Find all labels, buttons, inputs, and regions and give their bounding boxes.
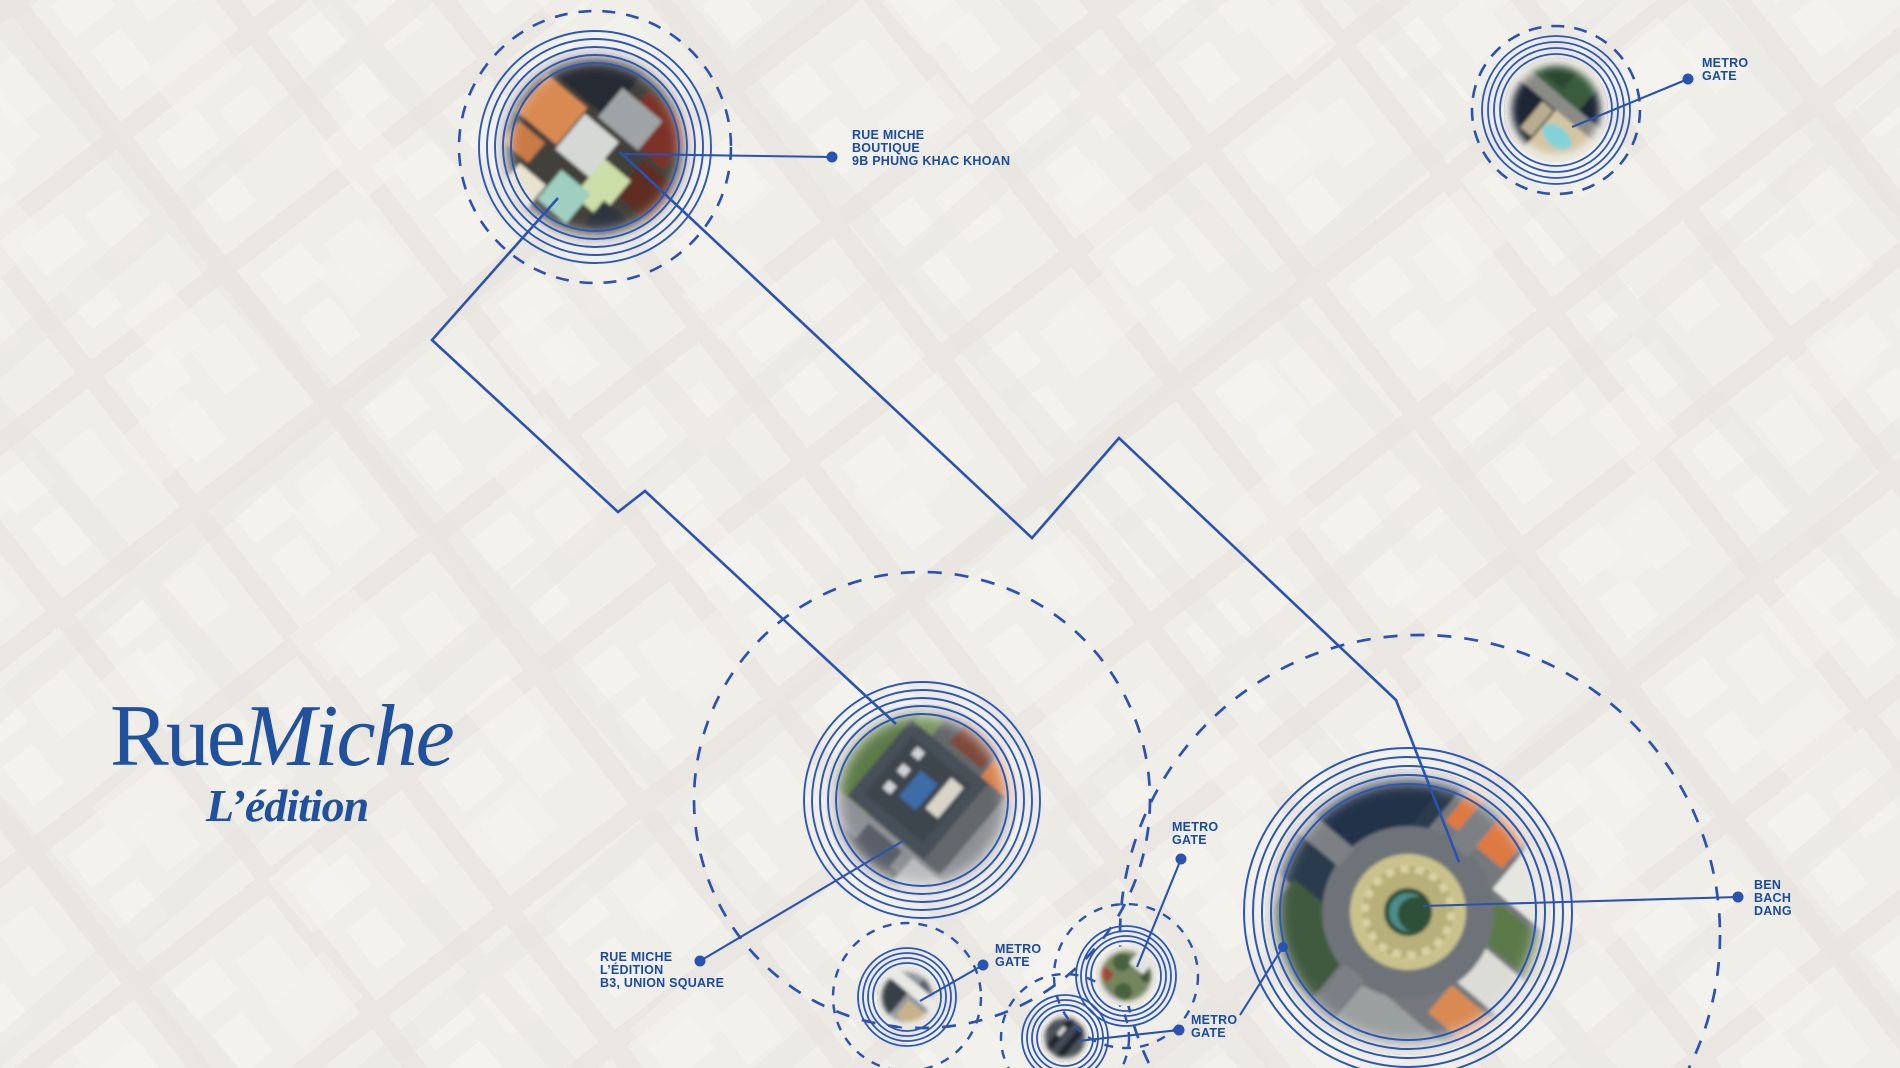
label-line: GATE [1191, 1027, 1237, 1040]
map-canvas: RUE MICHE BOUTIQUE 9B PHUNG KHAC KHOAN M… [0, 0, 1900, 1068]
label-metro-gate-n: METRO GATE [1172, 821, 1218, 847]
brand-wordmark: RueMiche [110, 694, 453, 780]
label-metro-gate-ne: METRO GATE [1702, 57, 1748, 83]
label-metro-gate-s: METRO GATE [1191, 1014, 1237, 1040]
brand-title-regular: Rue [110, 688, 243, 785]
label-line: DANG [1754, 905, 1792, 918]
brand-title-italic: Miche [243, 688, 453, 785]
label-line: GATE [1702, 70, 1748, 83]
label-metro-gate-w: METRO GATE [995, 943, 1041, 969]
brand-subtitle: L’édition [206, 782, 453, 830]
brand-logo: RueMiche L’édition [110, 694, 453, 830]
label-edition: RUE MICHE L’ÉDITION B3, UNION SQUARE [600, 951, 724, 991]
label-line: 9B PHUNG KHAC KHOAN [852, 155, 1010, 168]
label-line: GATE [995, 956, 1041, 969]
label-line: B3, UNION SQUARE [600, 977, 724, 990]
label-line: GATE [1172, 834, 1218, 847]
label-boutique: RUE MICHE BOUTIQUE 9B PHUNG KHAC KHOAN [852, 129, 1010, 169]
label-ben-bach-dang: BEN BACH DANG [1754, 879, 1792, 919]
